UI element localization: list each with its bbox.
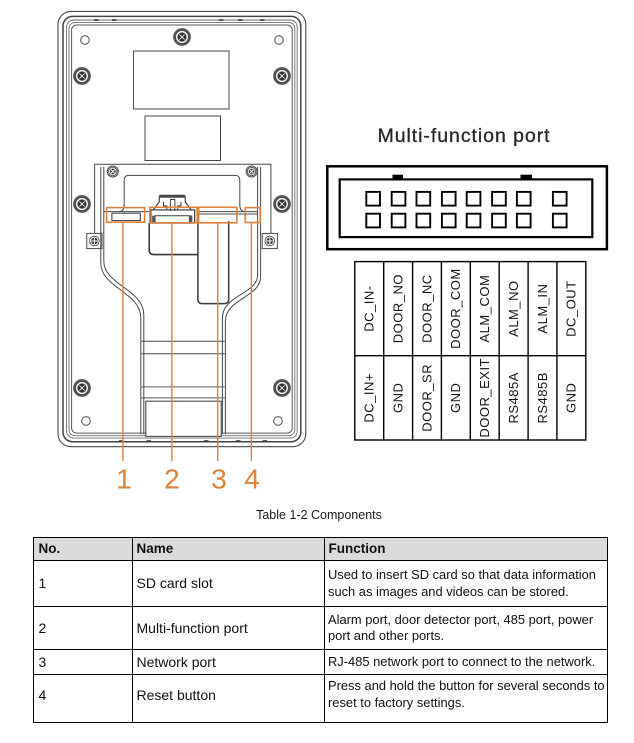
svg-text:3: 3 [211, 463, 227, 494]
svg-text:RS485B: RS485B [535, 372, 550, 423]
svg-text:DOOR_NO: DOOR_NO [390, 274, 405, 343]
svg-text:ALM_COM: ALM_COM [477, 275, 492, 343]
svg-text:DC_IN-: DC_IN- [362, 285, 377, 331]
svg-text:DOOR_NC: DOOR_NC [419, 274, 434, 343]
svg-text:DOOR_COM: DOOR_COM [448, 268, 463, 349]
svg-text:DC_IN+: DC_IN+ [362, 373, 377, 423]
svg-text:1: 1 [116, 463, 132, 494]
svg-text:RS485A: RS485A [506, 372, 521, 423]
svg-text:ALM_IN: ALM_IN [535, 284, 550, 334]
svg-text:GND: GND [564, 383, 579, 413]
svg-text:GND: GND [390, 383, 405, 413]
svg-text:4: 4 [244, 463, 260, 494]
svg-text:DOOR_EXIT: DOOR_EXIT [477, 358, 492, 438]
svg-text:DC_OUT: DC_OUT [564, 280, 579, 336]
svg-text:GND: GND [448, 383, 463, 413]
svg-text:ALM_NO: ALM_NO [506, 280, 521, 336]
svg-text:2: 2 [164, 463, 180, 494]
svg-text:DOOR_SR: DOOR_SR [419, 364, 434, 432]
